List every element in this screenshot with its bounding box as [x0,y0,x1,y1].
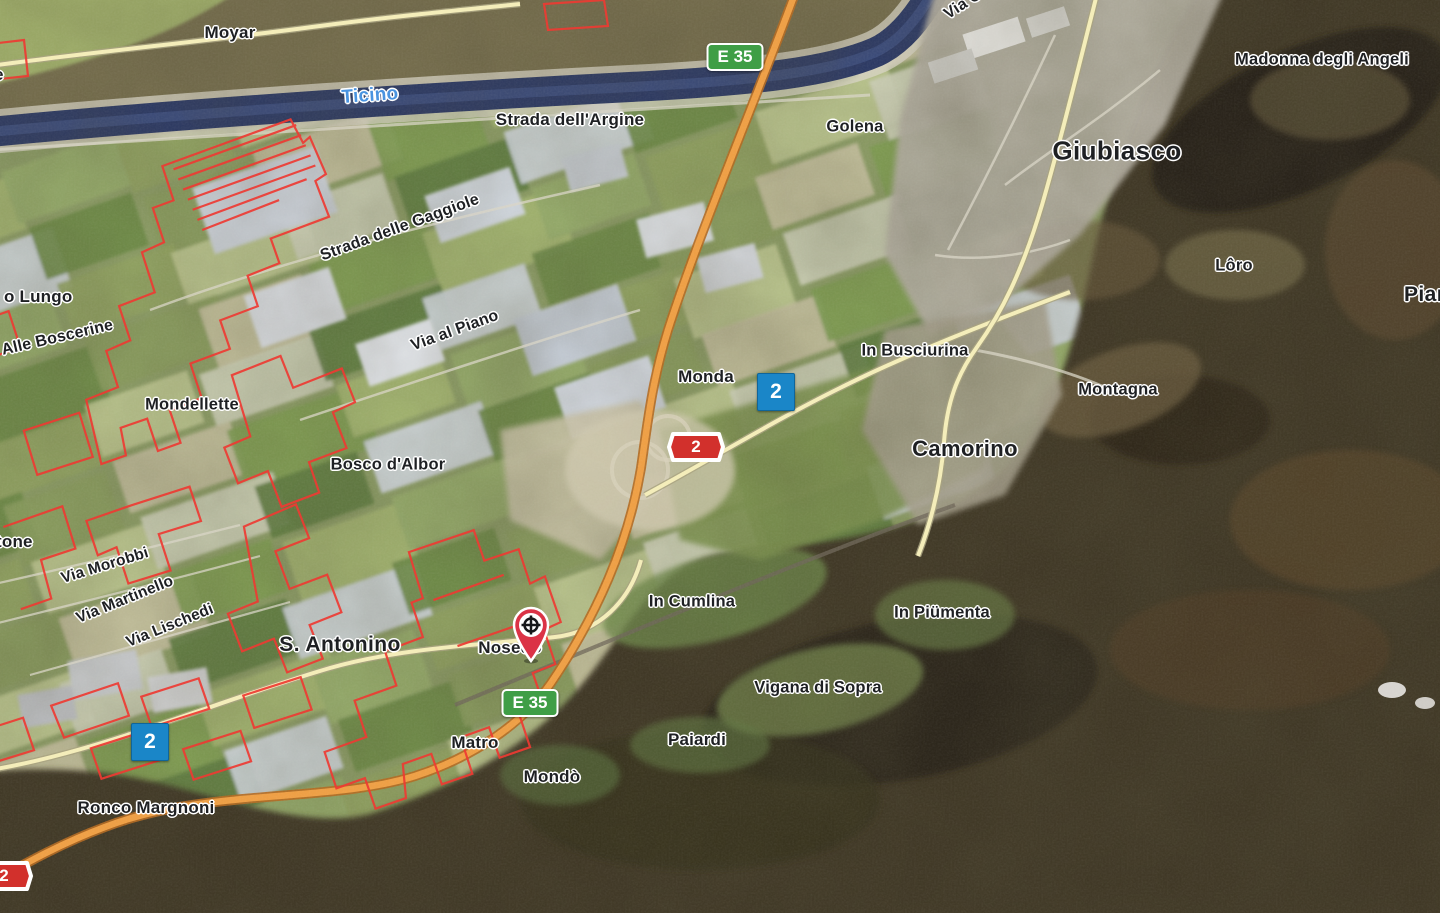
route-shield-2-red-partial: 2 [0,860,34,892]
place-label-moyar: Moyar [204,23,255,43]
route-shield-2-blue-upper-text: 2 [770,380,782,404]
place-label-vigana-di-sopra: Vigana di Sopra [754,679,881,698]
route-shield-2-blue-upper: 2 [757,373,795,411]
place-label-o-lungo: o Lungo [4,287,72,307]
place-label-mondellette: Mondellette [145,396,239,415]
location-pin[interactable] [509,604,553,669]
place-label-ronco-margnoni: Ronco Margnoni [78,798,215,818]
place-label-madonna-degli-angeli: Madonna degli Angeli [1235,51,1409,70]
place-label-s-antonino: S. Antonino [279,633,400,657]
route-shield-2-blue-lower: 2 [131,723,169,761]
place-label-giubiasco: Giubiasco [1052,136,1181,167]
route-shield-e35-bottom: E 35 [502,689,559,717]
place-label-camorino: Camorino [912,436,1018,462]
partial-label-e: e [0,65,4,85]
place-label-matro: Matro [451,733,498,753]
route-shield-e35-top-text: E 35 [718,47,753,67]
place-label-bosco-d-albor: Bosco d'Albor [331,456,446,475]
route-shield-e35-top: E 35 [707,43,764,71]
crosshair-target-icon [509,604,553,664]
route-shield-2-red: 2 [666,431,726,463]
place-label-montagna: Montagna [1078,381,1158,400]
route-shield-2-red-text: 2 [691,437,700,457]
place-label-paiardi: Paiardi [668,730,726,750]
satellite-map-view[interactable]: Moyar Ticino Strada dell'Argine Golena G… [0,0,1440,913]
place-label-mondo: Mondò [524,767,581,787]
place-label-in-piumenta: In Piümenta [894,604,990,623]
route-shield-e35-bottom-text: E 35 [513,693,548,713]
place-label-loro: Lôro [1215,257,1252,276]
route-shield-2-blue-lower-text: 2 [144,730,156,754]
place-label-monda: Monda [678,367,734,387]
road-label-strada-dell-argine: Strada dell'Argine [496,110,644,130]
place-label-pian: Pian [1404,283,1440,307]
route-shield-2-red-partial-text: 2 [0,866,9,886]
place-label-tone-partial: tone [0,532,33,552]
place-label-golena: Golena [826,118,883,137]
place-label-in-busciurina: In Busciurina [861,342,968,361]
water-label-ticino: Ticino [341,83,399,109]
place-label-in-cumlina: In Cumlina [649,593,735,612]
